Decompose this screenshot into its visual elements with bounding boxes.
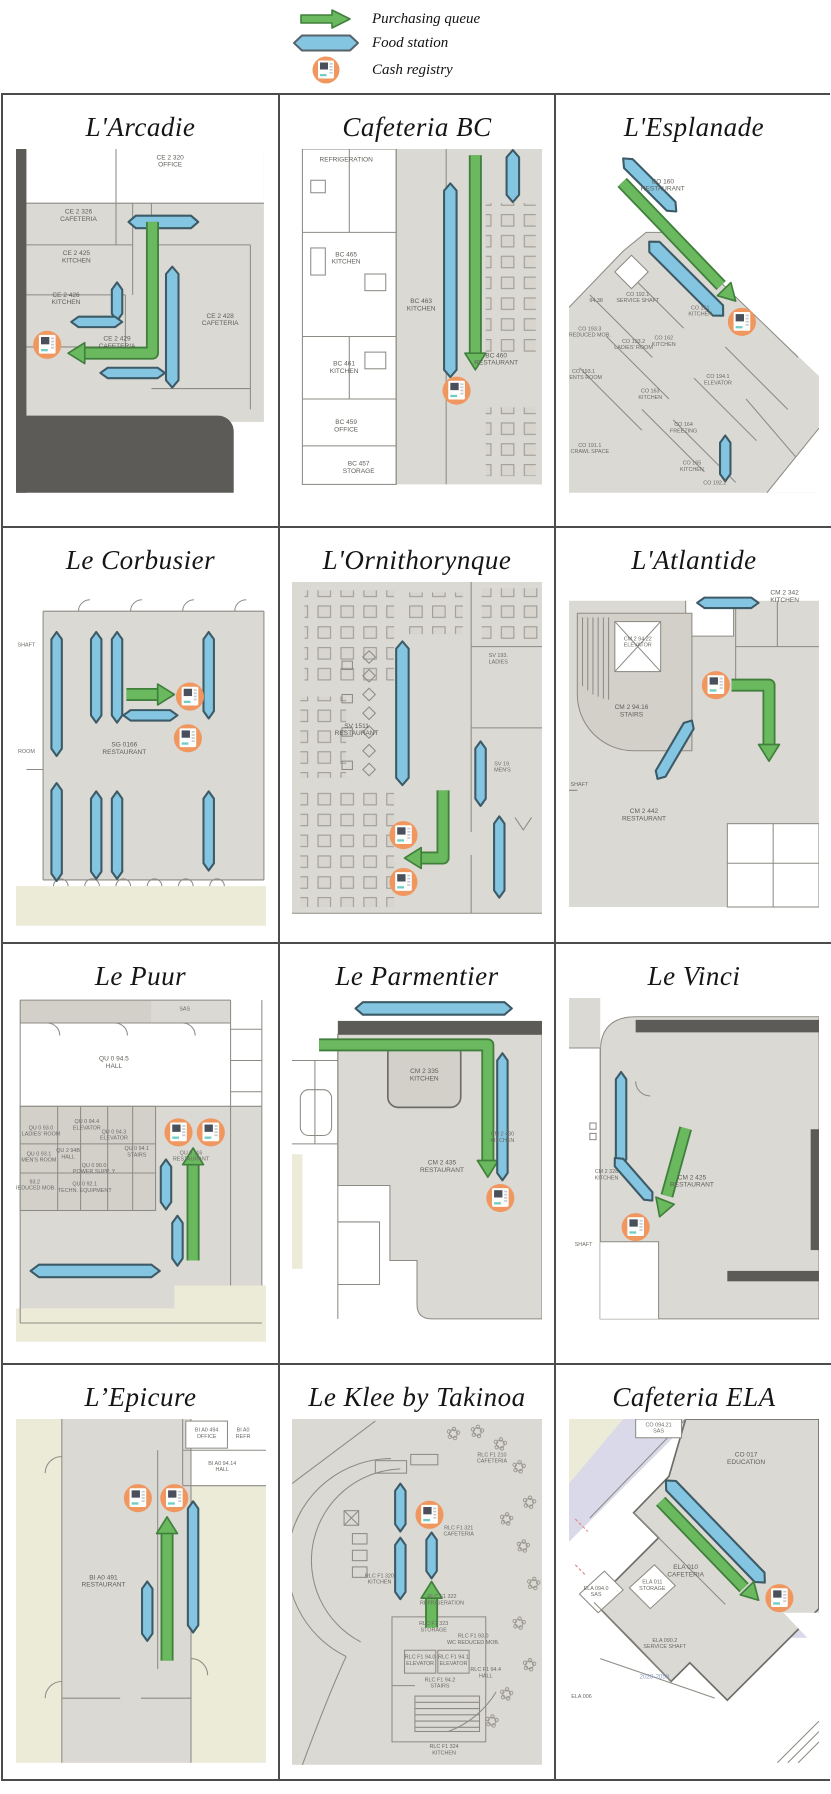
room-label: RESTAURANT bbox=[81, 1582, 125, 1589]
room-label: SERVICE SHAFT bbox=[643, 1644, 687, 1650]
room-label: CO 161 bbox=[691, 305, 710, 311]
room-label: CO 193.2 bbox=[622, 339, 645, 345]
room-label: RESTAURANT bbox=[172, 1157, 209, 1163]
room-label: KITCHEN bbox=[432, 1750, 456, 1756]
cell-ornithorynque: L'Ornithorynque bbox=[280, 528, 556, 944]
floor-plan-ornithorynque: SV 1511 RESTAURANT SV 193. LADIES SV 19.… bbox=[292, 582, 542, 926]
room-label: KITCHEN bbox=[770, 597, 799, 604]
floor-plan-atlantide: CM 2 94.22 ELEVATOR CM 2 94.16 STAIRS CM… bbox=[569, 582, 819, 926]
cash-registry-icon bbox=[175, 683, 203, 711]
page-title: L’Epicure bbox=[3, 1382, 278, 1413]
room-label: SV 193. bbox=[489, 653, 509, 659]
floor-plan-grid: L'Arcadie CE 2 320 OFFICE CE 2 326 CAFET… bbox=[1, 93, 830, 1781]
cell-cafeteria-bc: Cafeteria BC REFRIGERATION BC 465 KITCHE… bbox=[280, 95, 556, 528]
room-label: ELA 010 bbox=[673, 1564, 698, 1571]
room-label: KITCHEN bbox=[330, 368, 359, 375]
room-label: CO 191.1 bbox=[578, 443, 601, 449]
room-label: CM 2 335 bbox=[410, 1068, 439, 1075]
floor-plan-vinci: CM 2 328 KITCHEN CM 2 425 RESTAURANT SHA… bbox=[569, 998, 819, 1342]
room-label: BC 459 bbox=[335, 419, 357, 426]
room-label: GENTS ROOM bbox=[569, 375, 603, 381]
room-label: CO 193.3 bbox=[578, 326, 601, 332]
room-label: RLC F1 94.0 bbox=[405, 1655, 436, 1661]
cell-parmentier: Le Parmentier CM 2 335 KITCHEN CM 2 435 … bbox=[280, 944, 556, 1365]
cash-registry-icon bbox=[702, 671, 730, 699]
room-label: RLC F1 320 bbox=[365, 1573, 394, 1579]
room-label: KITCHEN bbox=[407, 305, 436, 312]
room-label: RLC F1 210 bbox=[477, 1452, 506, 1458]
room-label: CO 165 bbox=[683, 461, 702, 467]
floor-plan-corbusier: SHAFT SG 0166 RESTAURANT ROOM bbox=[16, 582, 266, 926]
cell-cafeteria-ela: Cafeteria ELA CO 094.21 SAS CO 017 EDU bbox=[556, 1365, 831, 1779]
room-label: CO 017 bbox=[735, 1452, 758, 1459]
room-label: KITCHEN bbox=[491, 1138, 515, 1144]
room-label: CO 094.21 bbox=[646, 1422, 672, 1428]
room-label: RLC F1 324 bbox=[430, 1744, 459, 1750]
room-label: QU 0 93.1 bbox=[26, 1151, 51, 1157]
room-label: BI A0 491 bbox=[89, 1574, 118, 1581]
room-label: CO 194.1 bbox=[706, 374, 729, 380]
room-label: 93.2 bbox=[29, 1179, 40, 1185]
room-label: ELEVATOR bbox=[99, 1136, 127, 1142]
page-title: Le Klee by Takinoa bbox=[280, 1382, 554, 1413]
room-label: SAS bbox=[653, 1429, 664, 1435]
room-label: CE 2 320 bbox=[156, 154, 184, 161]
room-label: RESTAURANT bbox=[474, 360, 518, 367]
room-label: CO 164 bbox=[674, 422, 693, 428]
cell-klee: Le Klee by Takinoa bbox=[280, 1365, 556, 1779]
room-label: REFRIGERATION bbox=[319, 157, 373, 164]
page-title: L'Ornithorynque bbox=[280, 545, 554, 576]
room-label: ELA 006 bbox=[571, 1694, 591, 1700]
room-label: QU 0 90.0 bbox=[81, 1163, 106, 1169]
room-label: CAFETERIA bbox=[98, 343, 135, 350]
room-label: ELEVATOR bbox=[439, 1661, 467, 1667]
room-label: KITCHEN bbox=[638, 395, 662, 401]
room-label: RLC F1 321 bbox=[444, 1525, 473, 1531]
room-label: RESTAURANT bbox=[641, 186, 685, 193]
room-label: QU 2 94B bbox=[56, 1148, 80, 1154]
page-title: L'Atlantide bbox=[556, 545, 831, 576]
room-label: BC 465 bbox=[335, 251, 357, 258]
room-label: RLC F1 94.1 bbox=[438, 1655, 469, 1661]
room-label: REDUCED MOB. bbox=[569, 333, 611, 339]
room-label: KITCHEN bbox=[680, 467, 704, 473]
room-label: CM 2 435 bbox=[428, 1160, 457, 1167]
room-label: CM 2 342 bbox=[770, 590, 799, 597]
cash-registry-icon bbox=[765, 1584, 793, 1612]
room-label: STAIRS bbox=[430, 1684, 450, 1690]
room-label: QU 0 94.4 bbox=[74, 1119, 99, 1125]
room-label: CO 192.1 bbox=[626, 292, 649, 298]
room-label: CAFETERIA bbox=[667, 1571, 704, 1578]
room-label: CO 162 bbox=[654, 336, 673, 342]
room-label: CE 2 425 bbox=[62, 250, 90, 257]
cash-registry-icon bbox=[164, 1118, 192, 1146]
floor-plan-cafeteria-ela: CO 094.21 SAS CO 017 EDUCATION ELA 010 C… bbox=[569, 1419, 819, 1763]
room-label: KITCHEN bbox=[595, 1175, 619, 1181]
page-title: L'Arcadie bbox=[3, 112, 278, 143]
room-label: REFRIGERATION bbox=[420, 1600, 464, 1606]
cash-registry-icon bbox=[486, 1184, 514, 1212]
room-label: BC 463 bbox=[410, 298, 432, 305]
room-label: SV 1511 bbox=[344, 723, 369, 730]
room-label: ELEVATOR bbox=[406, 1661, 434, 1667]
cell-epicure: L’Epicure BI A0 494 OFFICE BI A0 REFR BI… bbox=[3, 1365, 280, 1779]
page-title: Cafeteria BC bbox=[280, 112, 554, 143]
room-label: MEN'S ROOM bbox=[21, 1158, 56, 1164]
room-label: BI A0 94.14 bbox=[208, 1461, 236, 1467]
room-label: CM 2 328 bbox=[595, 1169, 618, 1175]
room-label: LADIES' ROOM bbox=[21, 1132, 60, 1138]
legend-label: Cash registry bbox=[372, 62, 453, 79]
room-label: RLC F1 322 bbox=[427, 1594, 456, 1600]
room-label: SG 0166 bbox=[111, 742, 137, 749]
room-label: SERVICE SHAFT bbox=[616, 298, 660, 304]
room-label: KITCHEN bbox=[62, 258, 91, 265]
room-label: SHAFT bbox=[17, 643, 35, 649]
room-label: BI A0 bbox=[236, 1428, 249, 1434]
room-label: MEN'S bbox=[494, 768, 511, 774]
floor-plan-arcadie: CE 2 320 OFFICE CE 2 326 CAFETERIA CE 2 … bbox=[16, 149, 266, 493]
room-label: BC 461 bbox=[333, 361, 355, 368]
room-label: SHAFT bbox=[575, 1242, 593, 1248]
room-label: OFFICE bbox=[196, 1434, 216, 1440]
room-label: RESTAURANT bbox=[420, 1167, 464, 1174]
room-label: KITCHEN bbox=[688, 312, 712, 318]
room-label: EDUCATION bbox=[727, 1459, 765, 1466]
room-label: KITCHEN bbox=[332, 259, 361, 266]
cell-puur: Le Puur SAS QU 0 94.5 HALL QU 0 93.0 LAD… bbox=[3, 944, 280, 1365]
purchasing-queue-arrow-icon bbox=[299, 7, 353, 31]
floor-plan-esplanade: CO 160 RESTAURANT CO 192.1 SERVICE SHAFT… bbox=[569, 149, 819, 493]
cash-registry-icon bbox=[622, 1213, 650, 1241]
cash-registry-icon bbox=[173, 724, 201, 752]
legend-row-purchasing-queue: Purchasing queue bbox=[0, 7, 831, 31]
room-label: CO 192.2 bbox=[703, 480, 726, 486]
cash-registry-icon bbox=[311, 55, 341, 85]
room-label: RESTAURANT bbox=[335, 730, 379, 737]
room-label: CO 160 bbox=[651, 178, 674, 185]
room-label: ELEVATOR bbox=[704, 380, 732, 386]
legend-label: Food station bbox=[372, 35, 448, 52]
page-title: Le Puur bbox=[3, 961, 278, 992]
room-label: LADIES bbox=[489, 659, 509, 665]
room-label: STAIRS bbox=[127, 1152, 147, 1158]
legend-row-food-station: Food station bbox=[0, 33, 831, 53]
room-label: HALL bbox=[61, 1154, 75, 1160]
room-label: TECHN. EQUIPMENT bbox=[57, 1188, 111, 1194]
room-label: RLC F1 93.0 bbox=[458, 1634, 489, 1640]
room-label: ELA 011 bbox=[642, 1580, 662, 1586]
cell-vinci: Le Vinci CM 2 328 KITCHEN CM 2 425 RESTA… bbox=[556, 944, 831, 1365]
room-label: CM 2 94.16 bbox=[615, 704, 649, 711]
room-label: CO 163 bbox=[641, 389, 660, 395]
room-label: CM 2 430 bbox=[491, 1132, 514, 1138]
room-label: 94.38 bbox=[589, 298, 603, 304]
room-label: SAS bbox=[179, 1007, 190, 1013]
room-label: QU 0 94.5 bbox=[98, 1056, 128, 1063]
room-label: ELEVATOR bbox=[624, 643, 652, 649]
page-title: Le Parmentier bbox=[280, 961, 554, 992]
food-station-icon bbox=[293, 33, 359, 53]
room-label: CAFETERIA bbox=[443, 1532, 474, 1538]
room-label: RLC F1 94.2 bbox=[425, 1677, 456, 1683]
cell-arcadie: L'Arcadie CE 2 320 OFFICE CE 2 326 CAFET… bbox=[3, 95, 280, 528]
room-label: CE 2 429 bbox=[103, 336, 131, 343]
room-label: KITCHEN bbox=[410, 1075, 439, 1082]
room-label: CE 2 426 bbox=[52, 292, 80, 299]
room-label: CAFETERIA bbox=[60, 216, 97, 223]
room-label: RLC F1 94.4 bbox=[470, 1667, 501, 1673]
room-label: CE 2 428 bbox=[206, 313, 234, 320]
page-title: Le Vinci bbox=[556, 961, 831, 992]
room-label: STORAGE bbox=[420, 1627, 447, 1633]
cash-registry-icon bbox=[389, 821, 417, 849]
room-label: CO 193.1 bbox=[572, 369, 595, 375]
room-label: ELA 094.0 bbox=[584, 1586, 609, 1592]
room-label: BC 460 bbox=[485, 352, 507, 359]
room-label: STORAGE bbox=[639, 1586, 666, 1592]
room-label: SAS bbox=[591, 1592, 602, 1598]
room-label: STAIRS bbox=[620, 711, 644, 718]
room-label: FREEZING bbox=[670, 428, 697, 434]
room-label: RESTAURANT bbox=[102, 749, 146, 756]
room-label: STORAGE bbox=[343, 468, 376, 475]
room-label: HALL bbox=[215, 1467, 229, 1473]
page-title: Cafeteria ELA bbox=[556, 1382, 831, 1413]
cash-registry-icon bbox=[415, 1501, 443, 1529]
room-label: ELEVATOR bbox=[72, 1125, 100, 1131]
cell-esplanade: L'Esplanade CO 160 RESTAURANT CO 192.1 S… bbox=[556, 95, 831, 528]
room-label: QU 0 94.3 bbox=[101, 1129, 126, 1135]
room-label: ROOM bbox=[18, 749, 35, 755]
cell-atlantide: L'Atlantide CM 2 94.22 ELEVATOR CM 2 94.… bbox=[556, 528, 831, 944]
room-label: 2028-2058 bbox=[639, 1673, 669, 1680]
room-label: POWER SUPP. Y bbox=[72, 1169, 115, 1175]
room-label: BC 457 bbox=[348, 461, 370, 468]
page-title: L'Esplanade bbox=[556, 112, 831, 143]
cash-registry-icon bbox=[123, 1484, 151, 1512]
room-label: CAFETERIA bbox=[201, 320, 238, 327]
room-label: QU 0 93.0 bbox=[28, 1125, 53, 1131]
room-label: QU 0 92.1 bbox=[72, 1182, 97, 1188]
room-label: CM 2 442 bbox=[630, 808, 659, 815]
cash-registry-icon bbox=[160, 1484, 188, 1512]
room-label: KITCHEN bbox=[51, 299, 80, 306]
room-label: LADIES' ROOM bbox=[614, 345, 653, 351]
room-label: KITCHEN bbox=[368, 1580, 392, 1586]
room-label: CM 2 94.22 bbox=[624, 636, 652, 642]
legend-row-cash-registry: Cash registry bbox=[0, 55, 831, 85]
cash-registry-icon bbox=[33, 331, 61, 359]
room-label: SV 19. bbox=[494, 761, 511, 767]
room-label: QU 0 116 bbox=[179, 1150, 202, 1156]
floor-plan-epicure: BI A0 494 OFFICE BI A0 REFR BI A0 94.14 … bbox=[16, 1419, 266, 1763]
room-label: RESTAURANT bbox=[622, 816, 666, 823]
cash-registry-icon bbox=[389, 868, 417, 896]
page-title: Le Corbusier bbox=[3, 545, 278, 576]
room-label: WC REDUCED MOB. bbox=[447, 1640, 500, 1646]
cash-registry-icon bbox=[728, 308, 756, 336]
room-label: CE 2 326 bbox=[64, 209, 92, 216]
room-label: CRAWL SPACE bbox=[571, 449, 610, 455]
legend-label: Purchasing queue bbox=[372, 11, 480, 28]
room-label: HALL bbox=[105, 1063, 122, 1070]
room-label: REDUCED MOB. bbox=[16, 1186, 56, 1192]
cash-registry-icon bbox=[443, 377, 471, 405]
floor-plan-cafeteria-bc: REFRIGERATION BC 465 KITCHEN BC 463 KITC… bbox=[292, 149, 542, 493]
room-label: REFR bbox=[235, 1434, 250, 1440]
room-label: OFFICE bbox=[158, 162, 183, 169]
room-label: BI A0 494 bbox=[194, 1428, 217, 1434]
room-label: ELA 090.2 bbox=[652, 1638, 677, 1644]
room-label: HALL bbox=[479, 1673, 493, 1679]
room-label: RESTAURANT bbox=[670, 1182, 714, 1189]
legend: Purchasing queue Food station Cash regis… bbox=[0, 0, 831, 93]
room-label: KITCHEN bbox=[652, 342, 676, 348]
floor-plan-puur: SAS QU 0 94.5 HALL QU 0 93.0 LADIES' ROO… bbox=[16, 998, 266, 1342]
cell-corbusier: Le Corbusier SHAFT SG 0166 RESTAURANT bbox=[3, 528, 280, 944]
room-label: OFFICE bbox=[334, 426, 359, 433]
room-label: CAFETERIA bbox=[477, 1459, 508, 1465]
floor-plan-klee: RLC F1 210 CAFETERIA RLC F1 321 CAFETERI… bbox=[292, 1419, 542, 1765]
room-label: CM 2 425 bbox=[678, 1174, 707, 1181]
room-label: SHAFT bbox=[571, 782, 589, 788]
room-label: RLC F1 323 bbox=[419, 1621, 448, 1627]
room-label: QU 0 94.1 bbox=[124, 1146, 149, 1152]
floor-plan-parmentier: CM 2 335 KITCHEN CM 2 435 RESTAURANT CM … bbox=[292, 998, 542, 1342]
cash-registry-icon bbox=[196, 1118, 224, 1146]
